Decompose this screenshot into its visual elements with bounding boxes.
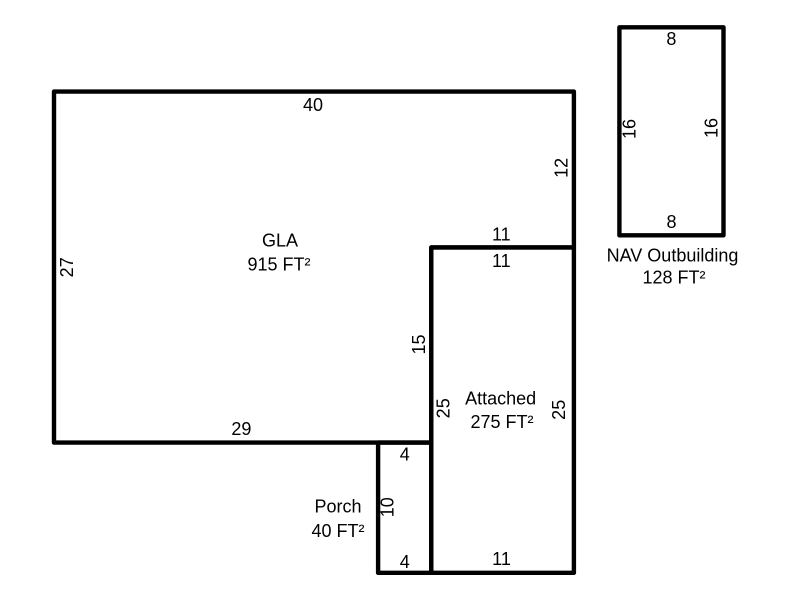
svg-text:27: 27: [57, 257, 77, 277]
svg-text:29: 29: [231, 419, 251, 439]
svg-text:11: 11: [492, 549, 511, 569]
svg-text:40: 40: [303, 95, 323, 115]
svg-text:8: 8: [666, 212, 676, 232]
svg-text:275 FT²: 275 FT²: [470, 412, 533, 432]
svg-text:16: 16: [620, 119, 640, 139]
svg-text:25: 25: [549, 400, 569, 420]
svg-text:11: 11: [492, 225, 511, 245]
svg-text:12: 12: [552, 158, 572, 178]
svg-text:25: 25: [434, 398, 454, 418]
svg-text:11: 11: [492, 251, 511, 271]
svg-text:40 FT²: 40 FT²: [311, 521, 364, 541]
svg-text:Porch: Porch: [314, 497, 361, 517]
svg-text:Attached: Attached: [465, 388, 536, 408]
svg-text:4: 4: [400, 444, 410, 464]
svg-text:NAV Outbuilding: NAV Outbuilding: [607, 246, 739, 266]
svg-text:128 FT²: 128 FT²: [642, 268, 705, 288]
svg-text:4: 4: [400, 552, 410, 572]
svg-text:16: 16: [702, 118, 722, 138]
svg-text:8: 8: [666, 29, 676, 49]
svg-text:10: 10: [378, 497, 398, 517]
svg-text:GLA: GLA: [262, 230, 298, 250]
svg-text:915 FT²: 915 FT²: [247, 254, 310, 274]
svg-text:15: 15: [409, 334, 429, 354]
